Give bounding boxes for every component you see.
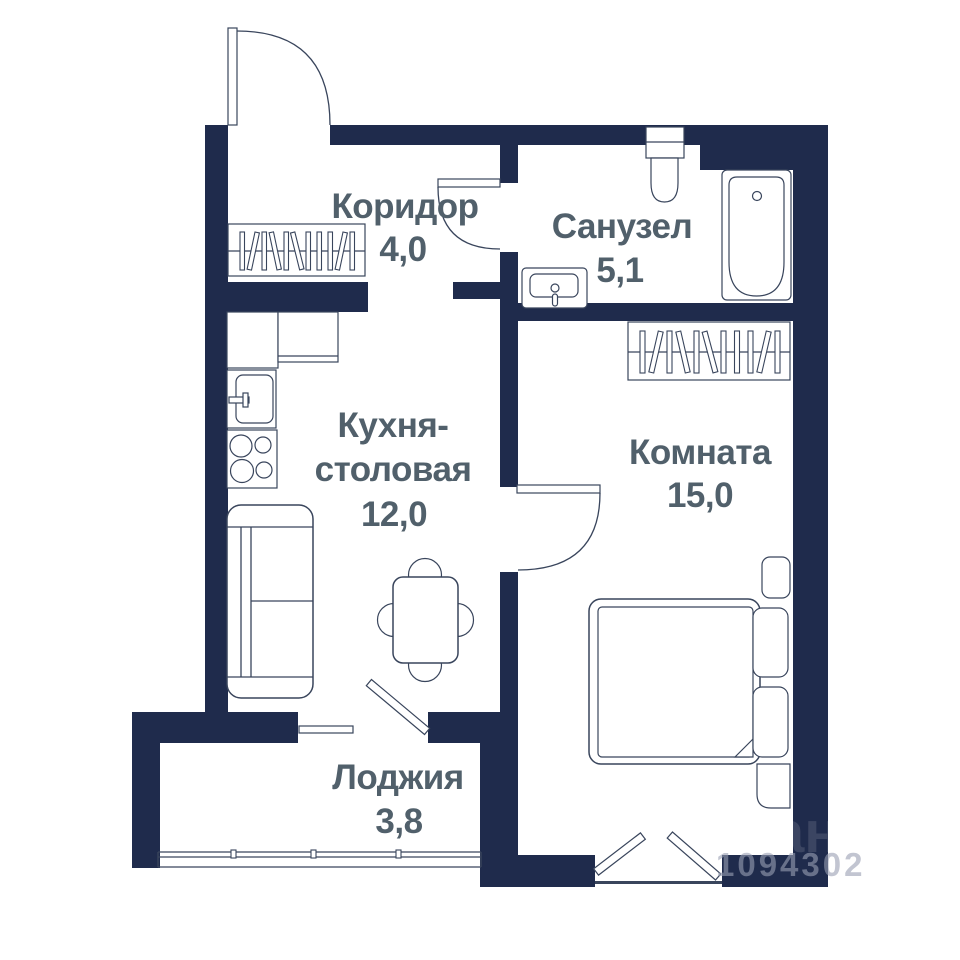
room-door-leaf (517, 485, 600, 493)
bathtub-icon (722, 170, 791, 300)
bathroom-door-leaf (438, 179, 500, 187)
watermark-digits: 1094302 (716, 846, 865, 883)
room-label-kitchen-line2: столовая (315, 450, 472, 489)
glazing-mullion (311, 850, 316, 858)
window-icon (594, 832, 722, 884)
nightstand-icon (762, 557, 790, 598)
entrance-door-swing-arc (237, 31, 330, 125)
sofa-icon (227, 505, 313, 698)
balcony-door-icon (299, 680, 430, 735)
kitchen-counter (227, 312, 338, 368)
loggia-glazing (158, 850, 481, 867)
room-area-bathroom: 5,1 (596, 251, 643, 290)
room-area-corridor: 4,0 (379, 230, 426, 269)
pillow (753, 608, 788, 677)
wardrobe-room-icon (628, 322, 790, 380)
kitchen-sink-icon (227, 370, 276, 428)
room-area-kitchen: 12,0 (361, 495, 427, 534)
glazing-mullion (396, 850, 401, 858)
room-door-icon (517, 485, 600, 570)
window-sill (299, 726, 353, 733)
window-outer-line (595, 881, 722, 884)
bed-icon (589, 599, 788, 764)
pillow (753, 687, 788, 757)
bathroom-sink-icon (522, 268, 587, 308)
window-sash (594, 833, 646, 875)
dining-table-icon (378, 559, 474, 682)
balcony-door-leaf (366, 680, 429, 735)
entrance-door-leaf (228, 28, 237, 125)
window-sash (667, 832, 721, 880)
room-label-living-room: Комната (629, 433, 772, 472)
toilet-icon (646, 127, 684, 202)
floor-plan: Коридор 4,0 Санузел 5,1 Кухня- столовая … (0, 0, 960, 960)
glazing-mullion (231, 850, 236, 858)
watermark: ан 1094302 (716, 800, 865, 883)
room-area-living-room: 15,0 (667, 476, 733, 515)
mattress (598, 607, 753, 757)
sink-faucet (551, 284, 559, 292)
room-label-loggia: Лоджия (332, 758, 463, 797)
bathtub-drain (753, 192, 762, 201)
room-door-swing-arc (518, 493, 600, 570)
wardrobe-corridor-icon (228, 224, 365, 276)
stove-icon (227, 430, 277, 488)
room-label-kitchen-line1: Кухня- (338, 406, 449, 445)
table-top (393, 577, 458, 663)
room-label-bathroom: Санузел (552, 207, 692, 246)
entrance-door-icon (228, 28, 330, 125)
room-label-corridor: Коридор (331, 187, 478, 226)
room-area-loggia: 3,8 (375, 802, 422, 841)
